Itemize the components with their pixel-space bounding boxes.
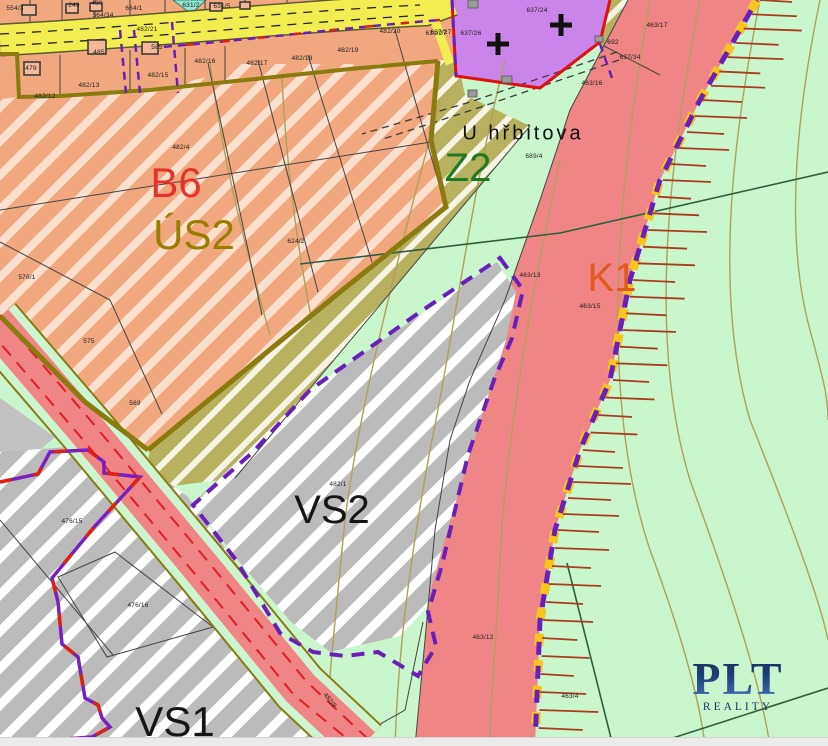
parcel-label: 485 — [93, 50, 104, 57]
watermark-brand: PLT — [668, 652, 808, 705]
parcel-label: 575 — [83, 339, 94, 346]
parcel-label: 463/4 — [561, 694, 578, 701]
parcel-label: 482/18 — [291, 56, 312, 63]
place-name-label: U hřbitova — [462, 123, 583, 146]
parcel-label: 463/15 — [579, 304, 600, 311]
parcel-label: 664/1 — [125, 6, 142, 13]
zone-label-b6: B6 — [150, 162, 201, 204]
parcel-label: 482/4 — [172, 145, 189, 152]
parcel-label: 631/5 — [213, 4, 230, 11]
parcel-label: 463/12 — [472, 635, 493, 642]
parcel-label: 631/2 — [182, 3, 199, 10]
parcel-label: 689/4 — [525, 154, 542, 161]
zone-label-vs2: VS2 — [294, 490, 370, 530]
parcel-label: 624/2 — [287, 239, 304, 246]
parcel-label: 637/24 — [526, 8, 547, 15]
watermark-subtitle: REALITY — [668, 701, 808, 713]
parcel-label: 482/13 — [78, 83, 99, 90]
parcel-label: 482/21 — [136, 27, 157, 34]
parcel-label: 564/34 — [92, 13, 113, 20]
zone-label-us2: ÚS2 — [153, 214, 235, 256]
parcel-label: 476/15 — [61, 519, 82, 526]
parcel-label: 585 — [151, 45, 162, 52]
window-bottom-edge — [0, 737, 828, 746]
parcel-label: 578/1 — [18, 275, 35, 282]
parcel-label: 482/12 — [34, 94, 55, 101]
parcel-label: 554/3 — [6, 6, 23, 13]
parcel-label: 637/27 — [430, 30, 451, 37]
parcel-label: 463/17 — [646, 23, 667, 30]
parcel-label: 637/26 — [460, 31, 481, 38]
parcel-label: 569 — [129, 401, 140, 408]
parcel-label: 479 — [25, 66, 36, 73]
zoning-map-drawing — [0, 0, 828, 746]
parcel-label: 482/15 — [147, 73, 168, 80]
parcel-label: 482/16 — [194, 59, 215, 66]
parcel-label: 482/19 — [337, 48, 358, 55]
parcel-label: 476/16 — [127, 603, 148, 610]
parcel-label: 482/20 — [379, 29, 400, 36]
parcel-label: 480 — [91, 1, 102, 8]
parcel-label: 463/16 — [581, 81, 602, 88]
zone-label-k1: K1 — [588, 258, 637, 298]
parcel-label: 637/34 — [619, 55, 640, 62]
parcel-label: 692 — [607, 40, 618, 47]
map-canvas[interactable]: 554/3249480564/34664/1631/2631/5482/2147… — [0, 0, 828, 746]
parcel-label: 463/13 — [519, 273, 540, 280]
parcel-label: 249 — [68, 3, 79, 10]
zone-label-z2: Z2 — [445, 148, 492, 188]
watermark: PLT REALITY — [668, 652, 808, 713]
parcel-label: 482/17 — [246, 61, 267, 68]
